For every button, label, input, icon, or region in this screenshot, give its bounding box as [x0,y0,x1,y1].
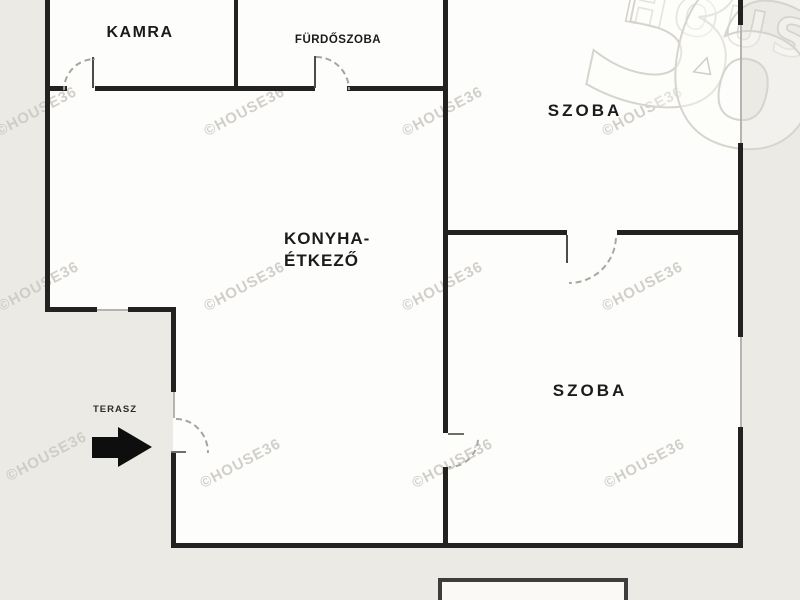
annex-wall-top [438,578,628,582]
wall-right-b [738,143,743,337]
wall-szoba-divider-a [443,230,567,235]
wall-bottom [171,543,743,548]
watermark-tile: ©HOUSE36 [599,258,686,315]
wall-left-lower-a [171,307,176,392]
wall-furdo-bottom-b [347,86,448,91]
window-szoba-bottom [740,337,742,427]
wall-center-vertical-lower [443,467,448,547]
annex-wall-left [438,578,442,600]
window-szoba-top [740,25,742,143]
watermark-tile: ©HOUSE36 [201,258,288,315]
room-label-line2: ÉTKEZŐ [284,250,404,272]
wall-left-lower-b [171,452,176,547]
wall-right-c [738,427,743,547]
wall-center-vertical-upper [443,0,448,433]
watermark-tile: ©HOUSE36 [601,435,688,492]
room-label-furdoszoba: FÜRDŐSZOBA [276,34,400,46]
watermark-tile: ©HOUSE36 [3,428,90,485]
room-label-konyha-etkezo: KONYHA- ÉTKEZŐ [284,228,404,272]
watermark-tile: ©HOUSE36 [197,435,284,492]
wall-kamra-furdo-divider [234,0,238,91]
terrace-label: TERASZ [93,404,137,415]
room-label-szoba-top: SZOBA [535,101,635,121]
wall-left-upper [45,0,50,312]
room-label-szoba-bottom: SZOBA [540,381,640,401]
watermark-tile: ©HOUSE36 [201,83,288,140]
window-entrance-side [173,392,175,418]
wall-kamra-furdo-bottom [95,86,315,91]
konyha-door-jamb [448,433,464,435]
wall-step-right [128,307,175,312]
wall-step-left [45,307,97,312]
entrance-arrow-head [118,427,152,467]
room-label-line1: KONYHA- [284,228,404,250]
szoba-top-door-leaf [566,235,568,263]
watermark-tile: ©HOUSE36 [0,83,80,140]
wall-right-a [738,0,743,25]
room-label-kamra: KAMRA [95,24,185,42]
floorplan-image: ©HOUSE36 ©HOUSE36 ©HOUSE36 ©HOUSE36 ©HOU… [0,0,800,600]
wall-szoba-divider-b [617,230,743,235]
window-step [97,309,128,311]
annex-wall-right [624,578,628,600]
